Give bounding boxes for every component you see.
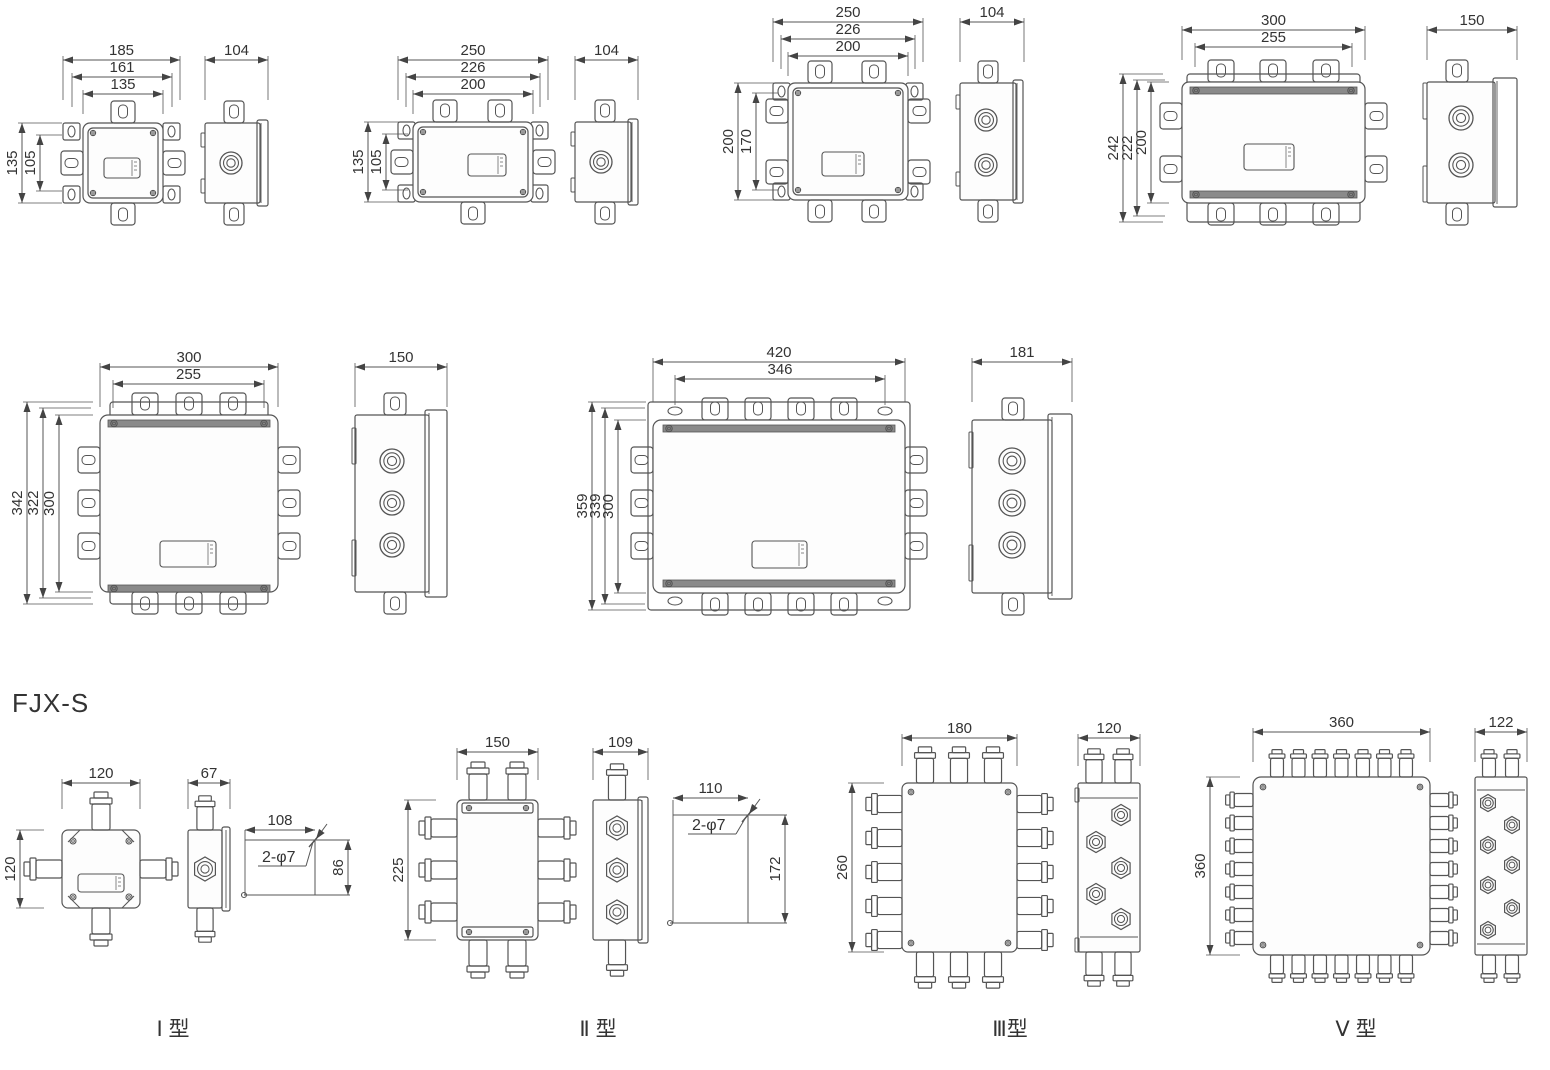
drawing-jb420x359: 420346359339300181 [574, 344, 1072, 615]
drawing-jb250x135: 250226200135105104 [350, 42, 638, 224]
side-view [352, 393, 447, 614]
drawing-jb300x342: 300255342322300150 [9, 349, 447, 614]
dim-label: 181 [1009, 344, 1034, 361]
front-view [78, 393, 300, 614]
dim-label: 322 [25, 490, 42, 515]
side-view [188, 796, 230, 942]
side-view [593, 764, 648, 976]
side-view [969, 398, 1072, 615]
dim-label: 225 [390, 857, 407, 882]
front-view [1160, 60, 1387, 225]
dim-label: 150 [485, 734, 510, 751]
front-view [866, 747, 1053, 988]
front-view [61, 101, 185, 225]
type-label-3: Ⅲ型 [992, 1018, 1027, 1041]
front-view [24, 792, 178, 946]
dim-label: 185 [109, 42, 134, 59]
side-view [1075, 749, 1140, 986]
front-view [1226, 750, 1458, 983]
dim-label: 226 [460, 59, 485, 76]
dim-label: 342 [9, 490, 26, 515]
dim-label: 161 [109, 59, 134, 76]
technical-drawing-canvas: FJX-S 185161135135105104 250226200135105… [0, 0, 1550, 1070]
front-view [419, 762, 576, 978]
front-view [631, 398, 927, 615]
dim-label: 67 [201, 765, 218, 782]
dim-label: 250 [835, 4, 860, 21]
dim-label: 108 [267, 812, 292, 829]
dim-label: 360 [1192, 853, 1209, 878]
dim-label: 104 [594, 42, 619, 59]
side-view [201, 101, 268, 225]
side-view [1423, 60, 1517, 225]
dim-label: 86 [330, 859, 347, 876]
dim-label: 105 [368, 149, 385, 174]
dim-label: 226 [835, 21, 860, 38]
dim-label: 180 [947, 720, 972, 737]
front-view [391, 100, 555, 224]
front-view [766, 61, 930, 222]
dim-label: 135 [4, 150, 21, 175]
type-label-5: Ⅴ 型 [1335, 1018, 1376, 1041]
drawing-fjxs-type1: 2-φ71088612012067 [2, 765, 350, 946]
side-view [956, 61, 1023, 222]
dim-label: 105 [22, 150, 39, 175]
dim-label: 255 [176, 366, 201, 383]
dim-label: 300 [600, 494, 617, 519]
hole-note-label: 2-φ7 [692, 817, 726, 834]
drawing-jb135-square: 185161135135105104 [4, 42, 268, 225]
side-view [1475, 750, 1527, 983]
dimensions: 1088612012067 [2, 765, 348, 908]
series-label: FJX-S [12, 688, 89, 718]
dim-label: 200 [460, 76, 485, 93]
drawing-jb300x242: 300255242222200150 [1105, 12, 1517, 225]
dim-label: 200 [835, 38, 860, 55]
dim-label: 120 [88, 765, 113, 782]
drawing-fjxs-type2: 2-φ7110172150225109 [390, 734, 787, 978]
dim-label: 120 [2, 856, 19, 881]
dim-label: 104 [224, 42, 249, 59]
type-label-1: Ⅰ 型 [156, 1018, 189, 1041]
side-view [571, 100, 638, 224]
dim-label: 172 [767, 856, 784, 881]
dim-label: 135 [350, 149, 367, 174]
dim-label: 360 [1329, 714, 1354, 731]
dim-label: 170 [738, 129, 755, 154]
dim-label: 200 [720, 129, 737, 154]
dim-label: 109 [608, 734, 633, 751]
drawing-sheet: FJX-S 185161135135105104 250226200135105… [0, 0, 1550, 1070]
dim-label: 260 [834, 855, 851, 880]
dim-label: 300 [41, 491, 58, 516]
dim-label: 122 [1488, 714, 1513, 731]
dim-label: 150 [1459, 12, 1484, 29]
dim-label: 135 [110, 76, 135, 93]
dim-label: 300 [176, 349, 201, 366]
dim-label: 250 [460, 42, 485, 59]
dim-label: 420 [766, 344, 791, 361]
dim-label: 255 [1261, 29, 1286, 46]
dim-label: 150 [388, 349, 413, 366]
dim-label: 346 [767, 361, 792, 378]
dim-label: 120 [1096, 720, 1121, 737]
drawing-fjxs-type5: 360360122 [1192, 714, 1527, 982]
type-label-2: Ⅱ 型 [579, 1018, 616, 1041]
drawing-jb250x200: 250226200200170104 [720, 4, 1024, 222]
dim-label: 200 [1133, 130, 1150, 155]
dim-label: 110 [699, 780, 723, 797]
dim-label: 300 [1261, 12, 1286, 29]
dim-label: 104 [979, 4, 1004, 21]
hole-note-label: 2-φ7 [262, 849, 296, 866]
drawing-fjxs-type3: 180260120 [834, 720, 1140, 988]
